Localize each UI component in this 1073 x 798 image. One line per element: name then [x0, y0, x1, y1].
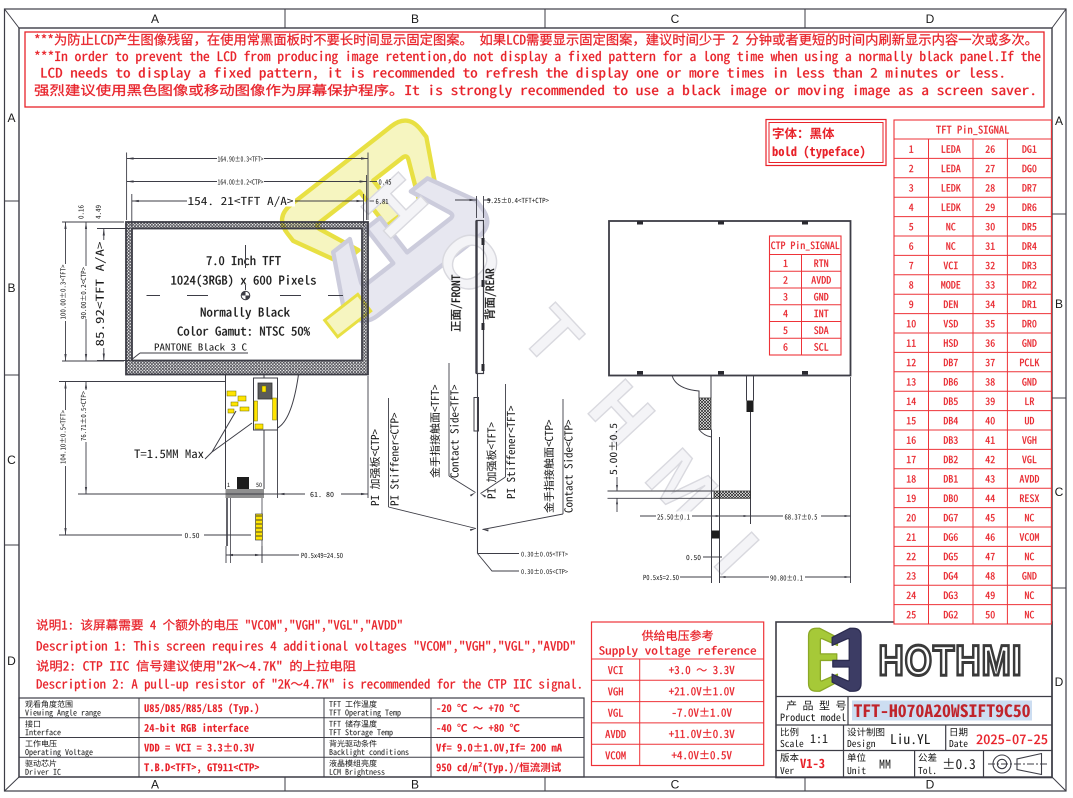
svg-text:B: B	[411, 12, 419, 26]
svg-text:D: D	[7, 654, 16, 668]
svg-text:B: B	[1055, 297, 1063, 311]
svg-text:A: A	[1055, 114, 1063, 128]
svg-text:C: C	[1055, 485, 1064, 499]
svg-text:D: D	[926, 12, 935, 26]
svg-text:A: A	[7, 111, 15, 125]
svg-text:HOTHMI: HOTHMI	[878, 637, 1022, 685]
svg-text:B: B	[411, 778, 419, 792]
svg-text:A: A	[151, 12, 159, 26]
svg-text:C: C	[671, 778, 680, 792]
svg-text:C: C	[7, 453, 16, 467]
svg-text:D: D	[1055, 675, 1064, 689]
svg-text:B: B	[7, 281, 15, 295]
svg-text:A: A	[151, 778, 159, 792]
svg-text:D: D	[926, 778, 935, 792]
svg-text:C: C	[671, 12, 680, 26]
